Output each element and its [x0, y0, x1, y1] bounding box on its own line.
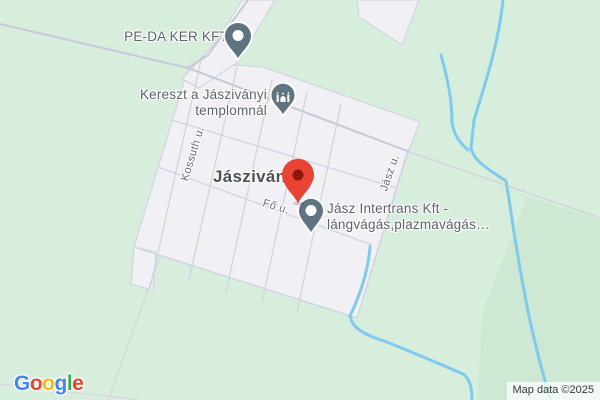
poi-label-kereszt[interactable]: Kereszt a Jásziványi templomnál: [105, 87, 267, 119]
poi-label-peda[interactable]: PE-DA KER KFT: [100, 29, 228, 45]
google-logo[interactable]: Google: [14, 372, 83, 396]
map-terrain-layer: [0, 0, 600, 400]
map-canvas[interactable]: PE-DA KER KFT Kereszt a Jásziványi templ…: [0, 0, 600, 400]
poi-label-intertrans[interactable]: Jász Intertrans Kft - lángvágás,plazmavá…: [327, 201, 490, 233]
map-attribution: Map data ©2025: [507, 382, 600, 400]
